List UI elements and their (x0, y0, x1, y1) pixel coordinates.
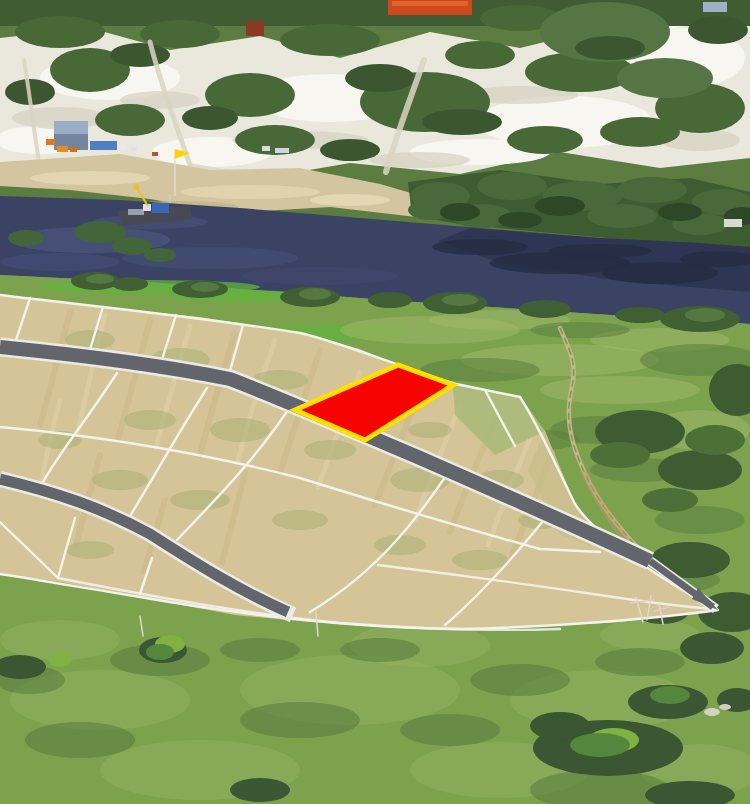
quarry-vegetation (320, 139, 380, 161)
white-vehicle (262, 146, 270, 151)
south-bank (25, 722, 135, 758)
south-bank (368, 292, 412, 308)
quarry-vegetation (617, 58, 713, 98)
debris (704, 708, 720, 716)
south-bank (230, 778, 290, 802)
south-bank (530, 322, 630, 338)
orange-warehouse-roof (392, 1, 468, 6)
river (242, 267, 398, 285)
far-bank-trees (498, 212, 542, 228)
quarry-vegetation (600, 117, 680, 147)
south-bank (112, 277, 148, 291)
field-mottle (124, 410, 176, 430)
south-bank (299, 288, 331, 300)
south-bank (220, 638, 300, 662)
river (0, 253, 120, 271)
aerial-plot-map-stage (0, 0, 750, 804)
south-bank (642, 488, 698, 512)
quarry-vegetation (345, 64, 415, 92)
south-bank (590, 442, 650, 468)
far-bank-trees (617, 177, 687, 203)
quarry-vegetation (110, 43, 170, 67)
south-bank (650, 686, 690, 704)
far-bank-structure (724, 219, 742, 227)
aerial-map (0, 0, 750, 804)
south-bank (442, 294, 478, 306)
white-vehicle (275, 148, 289, 153)
south-bank (680, 632, 744, 664)
south-bank (570, 733, 630, 757)
quarry-vegetation (688, 16, 748, 44)
quarry-vegetation (422, 109, 502, 135)
river (432, 239, 528, 255)
south-bank (400, 714, 500, 746)
riverbank-trees-north (144, 248, 176, 262)
blue-roof-highlight (54, 121, 88, 134)
orange-equipment (46, 139, 55, 145)
south-bank (146, 644, 174, 660)
south-bank (615, 307, 665, 323)
field-mottle (408, 422, 452, 438)
south-bank (470, 664, 570, 696)
south-bank (658, 450, 742, 490)
river-beach (30, 171, 150, 185)
quarry-vegetation (95, 104, 165, 136)
south-bank (240, 702, 360, 738)
field-mottle (272, 510, 328, 530)
white-vehicle (131, 147, 137, 151)
quarry-vegetation (507, 126, 583, 154)
barge-deck (128, 209, 144, 215)
field-mottle (66, 541, 114, 559)
river (548, 244, 652, 258)
far-bank-trees (477, 172, 547, 200)
field-mottle (92, 470, 148, 490)
south-bank (191, 282, 219, 292)
quarry-vegetation (15, 16, 105, 48)
far-bank-trees (658, 203, 702, 221)
white-vehicle (120, 144, 127, 149)
far-bank-trees (587, 204, 657, 228)
river-beach (180, 185, 320, 199)
red-hut (246, 21, 264, 36)
south-bank (685, 308, 725, 322)
far-bank-trees (535, 196, 585, 216)
pale-house (703, 2, 727, 12)
field-mottle (210, 418, 270, 442)
field-mottle (452, 550, 508, 570)
barge-cabin (152, 203, 169, 213)
red-machine (152, 152, 158, 156)
south-bank (48, 653, 72, 667)
south-bank (86, 274, 114, 284)
south-bank (340, 638, 420, 662)
river-beach (310, 194, 390, 206)
riverbank-trees-north (8, 230, 44, 246)
south-bank (685, 425, 745, 455)
south-bank (595, 648, 685, 676)
quarry-vegetation (575, 36, 645, 60)
orange-equipment (57, 146, 68, 152)
south-bank (519, 300, 571, 318)
quarry-vegetation (445, 41, 515, 69)
quarry-vegetation (182, 106, 238, 130)
debris (719, 704, 731, 710)
crane-tip (133, 184, 139, 190)
orange-equipment (70, 147, 77, 152)
quarry-vegetation (280, 24, 380, 56)
field-mottle (304, 440, 356, 460)
south-bank (540, 376, 700, 404)
blue-tarp (90, 141, 117, 150)
far-bank-trees (440, 203, 480, 221)
